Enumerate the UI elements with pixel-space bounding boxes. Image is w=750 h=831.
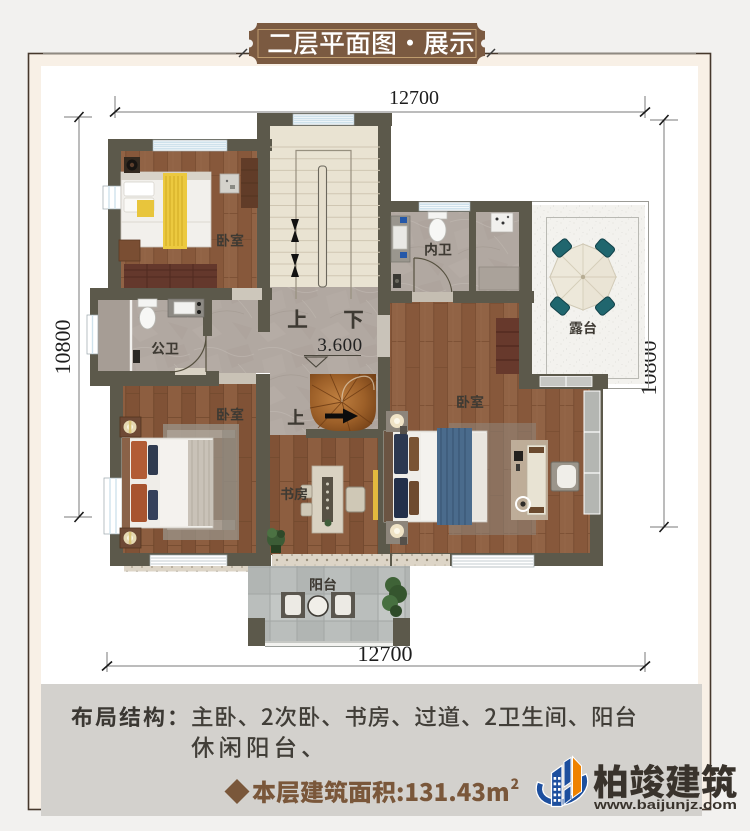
svg-text:10800: 10800	[50, 320, 75, 375]
svg-text:3.600: 3.600	[317, 335, 362, 356]
svg-text:www.baijunjz.com: www.baijunjz.com	[593, 798, 737, 812]
svg-text:12700: 12700	[389, 87, 439, 109]
